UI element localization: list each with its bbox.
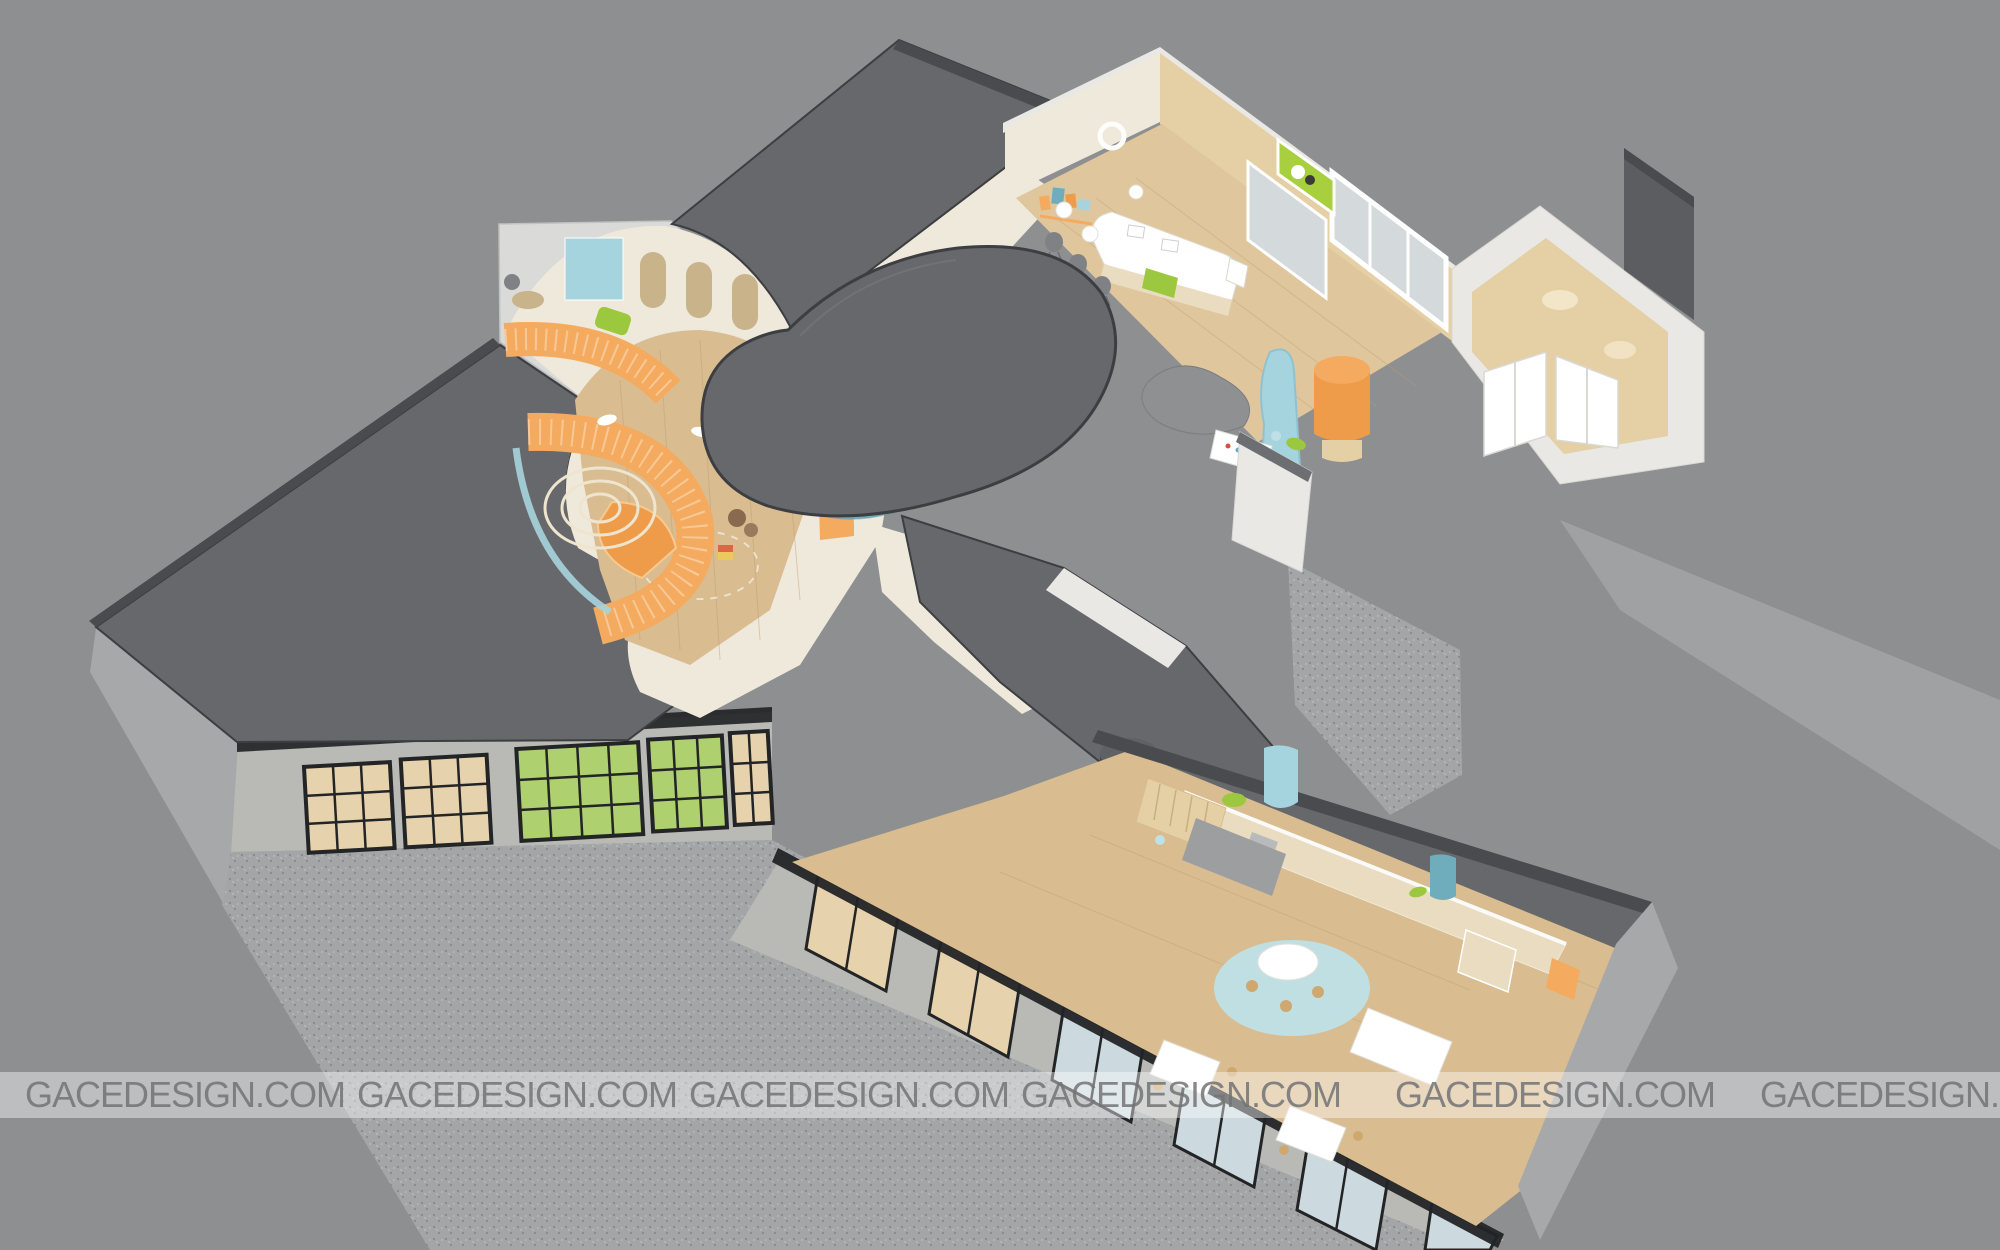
wall-light-glow: [1542, 290, 1578, 310]
pendant-lamp: [1082, 226, 1098, 242]
kid-chair: [1280, 1000, 1292, 1012]
watermark-text: GACEDESIGN.COM: [1021, 1074, 1341, 1115]
toy-dot: [1226, 444, 1231, 449]
small-table: [512, 291, 544, 309]
kid-chair: [1353, 1131, 1363, 1141]
blue-ball: [1271, 431, 1281, 441]
arch-column: [732, 274, 758, 330]
desk-monitor: [1127, 225, 1144, 238]
orange-cylinder-top: [1314, 356, 1370, 384]
green-pillow: [1222, 793, 1246, 807]
render-stage: GACEDESIGN.COM GACEDESIGN.COM GACEDESIGN…: [0, 0, 2000, 1250]
teal-banner: [1430, 854, 1456, 900]
watermark-text: GACEDESIGN.COM: [1395, 1074, 1715, 1115]
teddy-bear: [728, 509, 746, 527]
toilet-fixture: [1588, 423, 1604, 433]
toy-horse: [1155, 835, 1165, 845]
watermark-text: GACEDESIGN.COM: [357, 1074, 677, 1115]
teddy-bear: [744, 523, 758, 537]
kid-chair: [1312, 986, 1324, 998]
arch-column: [640, 252, 666, 308]
kid-chair: [1246, 980, 1258, 992]
gray-chair: [1045, 232, 1063, 252]
round-table: [1258, 944, 1318, 980]
cylinder-wood-base: [1322, 440, 1362, 462]
gray-chair: [504, 274, 520, 290]
watermark-text: GACEDESIGN.COM: [25, 1074, 345, 1115]
blue-banner: [1264, 745, 1298, 808]
pendant-lamp: [1129, 185, 1143, 199]
toy-cube-face: [718, 545, 733, 552]
axonometric-floorplan-render: GACEDESIGN.COM GACEDESIGN.COM GACEDESIGN…: [0, 0, 2000, 1250]
wall-light-glow: [1604, 341, 1636, 359]
facade-window: [648, 736, 727, 832]
facade-window: [304, 762, 395, 853]
kid-chair: [1279, 1145, 1289, 1155]
pendant-lamp: [1056, 202, 1072, 218]
desk-monitor: [1161, 239, 1178, 252]
watermark-text: GACEDESIGN.COM: [689, 1074, 1009, 1115]
sign-character: [1291, 165, 1305, 179]
watermark-text: GACEDESIGN.COM: [1760, 1074, 2000, 1115]
blue-cabinet: [565, 238, 623, 300]
toilet-fixture: [1524, 415, 1540, 425]
sign-character-cat: [1305, 175, 1315, 185]
arch-column: [686, 262, 712, 318]
logo-shape: [1077, 199, 1090, 211]
logo-shape: [1039, 195, 1051, 210]
facade-window: [401, 755, 492, 848]
